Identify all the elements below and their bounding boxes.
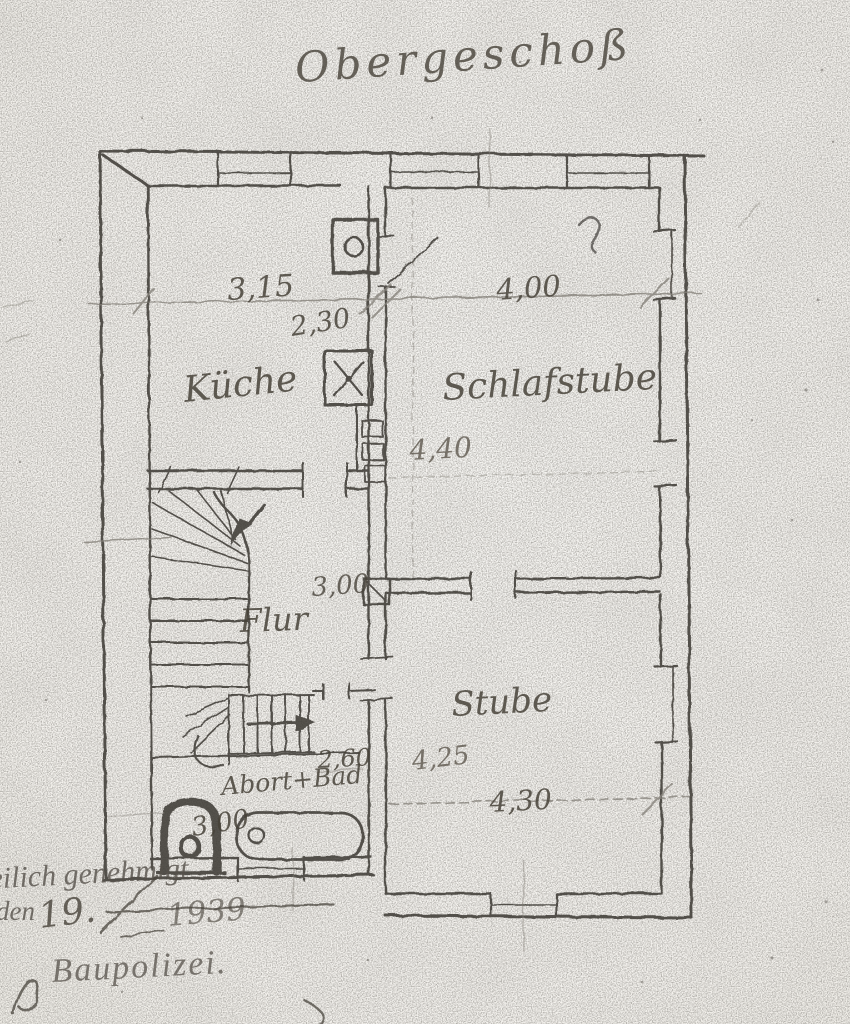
dim-kueche-width: 3,15 xyxy=(226,268,295,308)
dim-schlafstube-width: 4,00 xyxy=(494,269,562,307)
dim-schlafstube-depth: 4,40 xyxy=(408,431,473,467)
approval-date-number: 19. xyxy=(36,889,98,937)
stair-direction-arrow-down xyxy=(247,722,298,723)
room-label-flur: Flur xyxy=(238,600,310,640)
approval-date-year: 1939 xyxy=(166,891,248,934)
dim-stair-bad-width: 2,60 xyxy=(316,743,372,774)
dim-flur-width: 3,00 xyxy=(310,569,370,603)
dim-stube-width: 4,30 xyxy=(488,783,553,819)
room-label-stube: Stube xyxy=(450,680,553,725)
approval-date-word: den xyxy=(0,896,35,926)
floor-plan-svg: Obergeschoß Küche Schlafstube Flur Stube… xyxy=(0,0,850,1024)
scanned-floorplan-page: Obergeschoß Küche Schlafstube Flur Stube… xyxy=(0,0,850,1024)
